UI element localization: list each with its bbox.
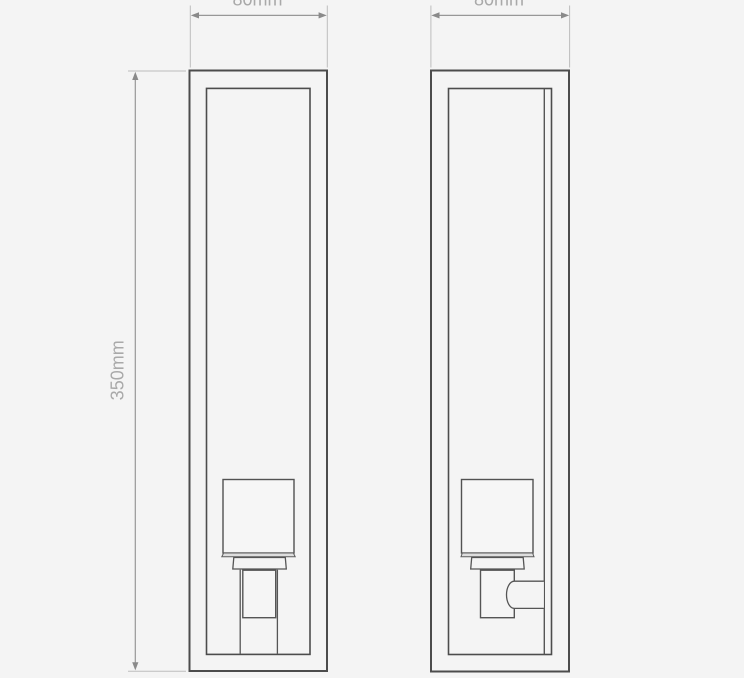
- svg-text:80mm: 80mm: [474, 0, 524, 9]
- svg-text:80mm: 80mm: [232, 0, 282, 9]
- svg-text:350mm: 350mm: [108, 340, 128, 400]
